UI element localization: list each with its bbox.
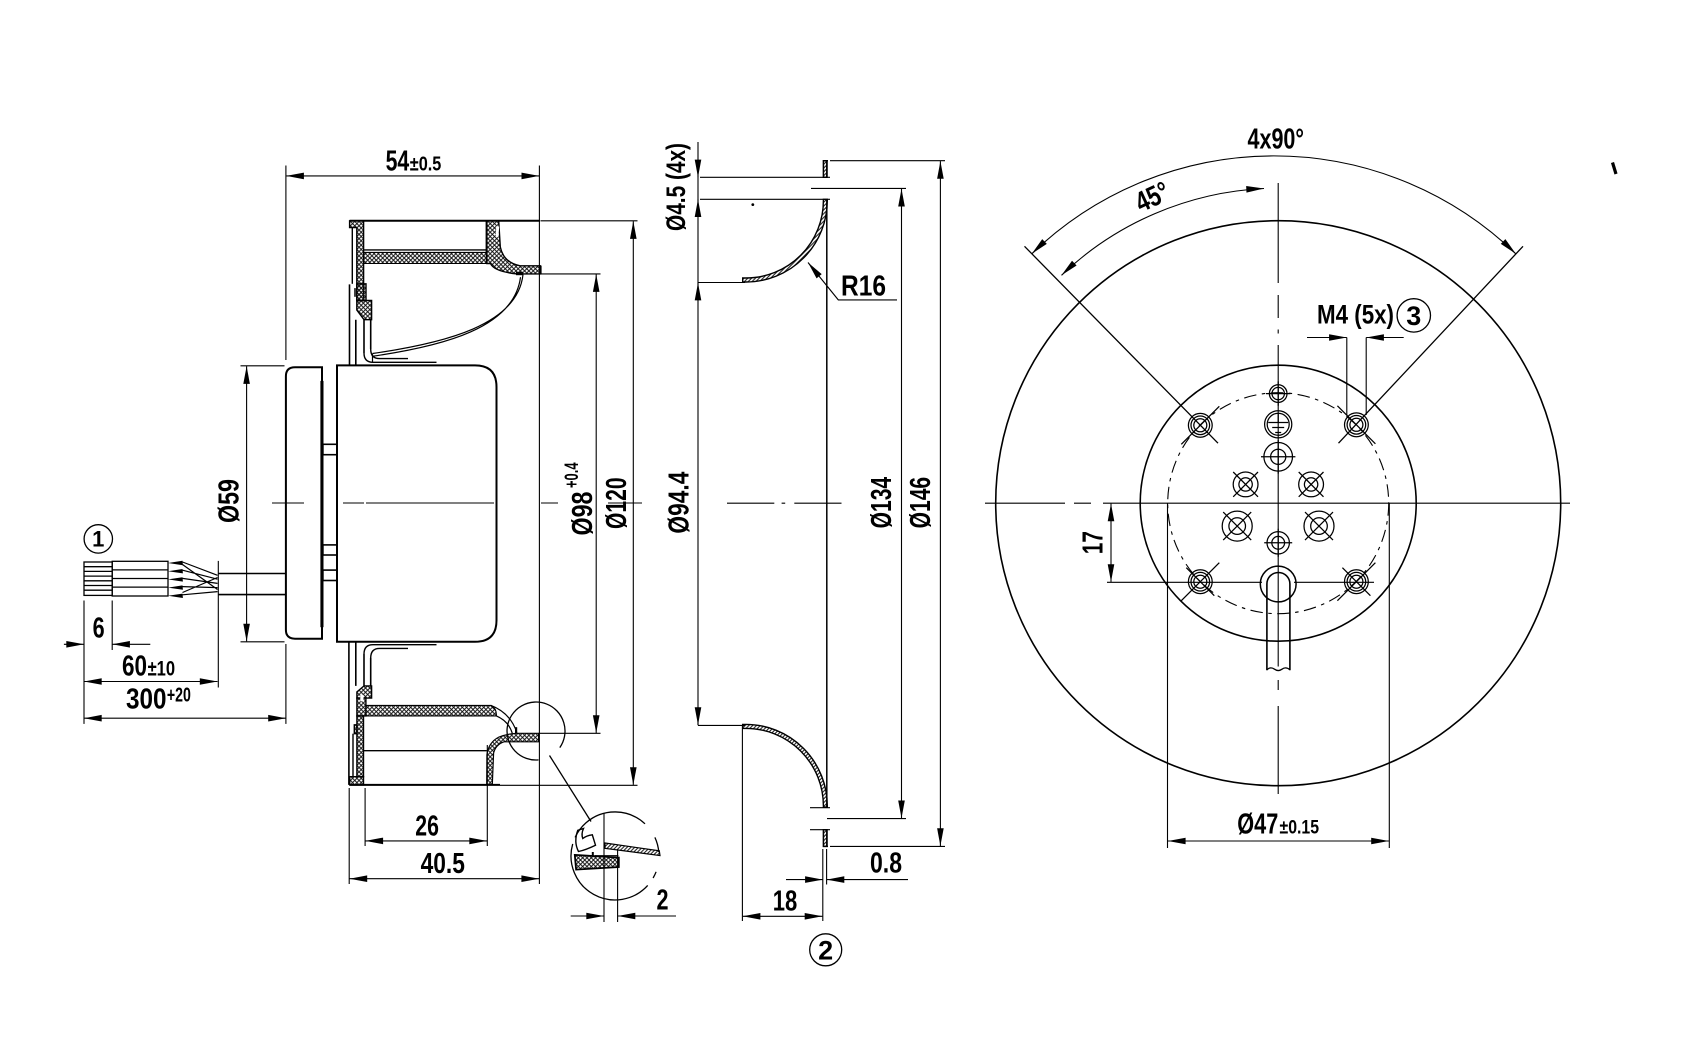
svg-text:Ø134: Ø134 bbox=[866, 477, 898, 529]
svg-text:300: 300 bbox=[126, 683, 167, 715]
svg-text:±0.15: ±0.15 bbox=[1280, 817, 1320, 839]
svg-text:Ø146: Ø146 bbox=[905, 477, 937, 528]
svg-text:±0.5: ±0.5 bbox=[410, 152, 442, 175]
svg-text:18: 18 bbox=[773, 886, 798, 918]
svg-text:2: 2 bbox=[657, 885, 669, 917]
svg-text:±10: ±10 bbox=[148, 657, 176, 680]
svg-text:26: 26 bbox=[415, 810, 439, 842]
svg-text:M4 (5x): M4 (5x) bbox=[1317, 300, 1394, 330]
svg-text:54: 54 bbox=[386, 145, 410, 177]
svg-text:17: 17 bbox=[1078, 531, 1110, 554]
svg-text:Ø94.4: Ø94.4 bbox=[664, 471, 696, 533]
svg-text:Ø98: Ø98 bbox=[567, 492, 599, 536]
svg-text:Ø59: Ø59 bbox=[214, 479, 246, 523]
svg-text:1: 1 bbox=[92, 526, 104, 551]
svg-text:40.5: 40.5 bbox=[421, 848, 465, 880]
svg-text:Ø120: Ø120 bbox=[601, 477, 633, 529]
svg-text:2: 2 bbox=[818, 936, 833, 966]
svg-text:0.8: 0.8 bbox=[870, 848, 902, 880]
svg-text:60: 60 bbox=[122, 650, 147, 682]
svg-text:R16: R16 bbox=[841, 271, 886, 303]
svg-text:+0.4: +0.4 bbox=[562, 462, 583, 488]
svg-text:Ø47: Ø47 bbox=[1237, 809, 1278, 841]
svg-text:Ø4.5 (4x): Ø4.5 (4x) bbox=[661, 143, 691, 231]
svg-text:3: 3 bbox=[1406, 301, 1421, 331]
svg-text:6: 6 bbox=[93, 613, 105, 645]
svg-text:4x90°: 4x90° bbox=[1248, 123, 1305, 155]
svg-text:+20: +20 bbox=[167, 684, 191, 706]
